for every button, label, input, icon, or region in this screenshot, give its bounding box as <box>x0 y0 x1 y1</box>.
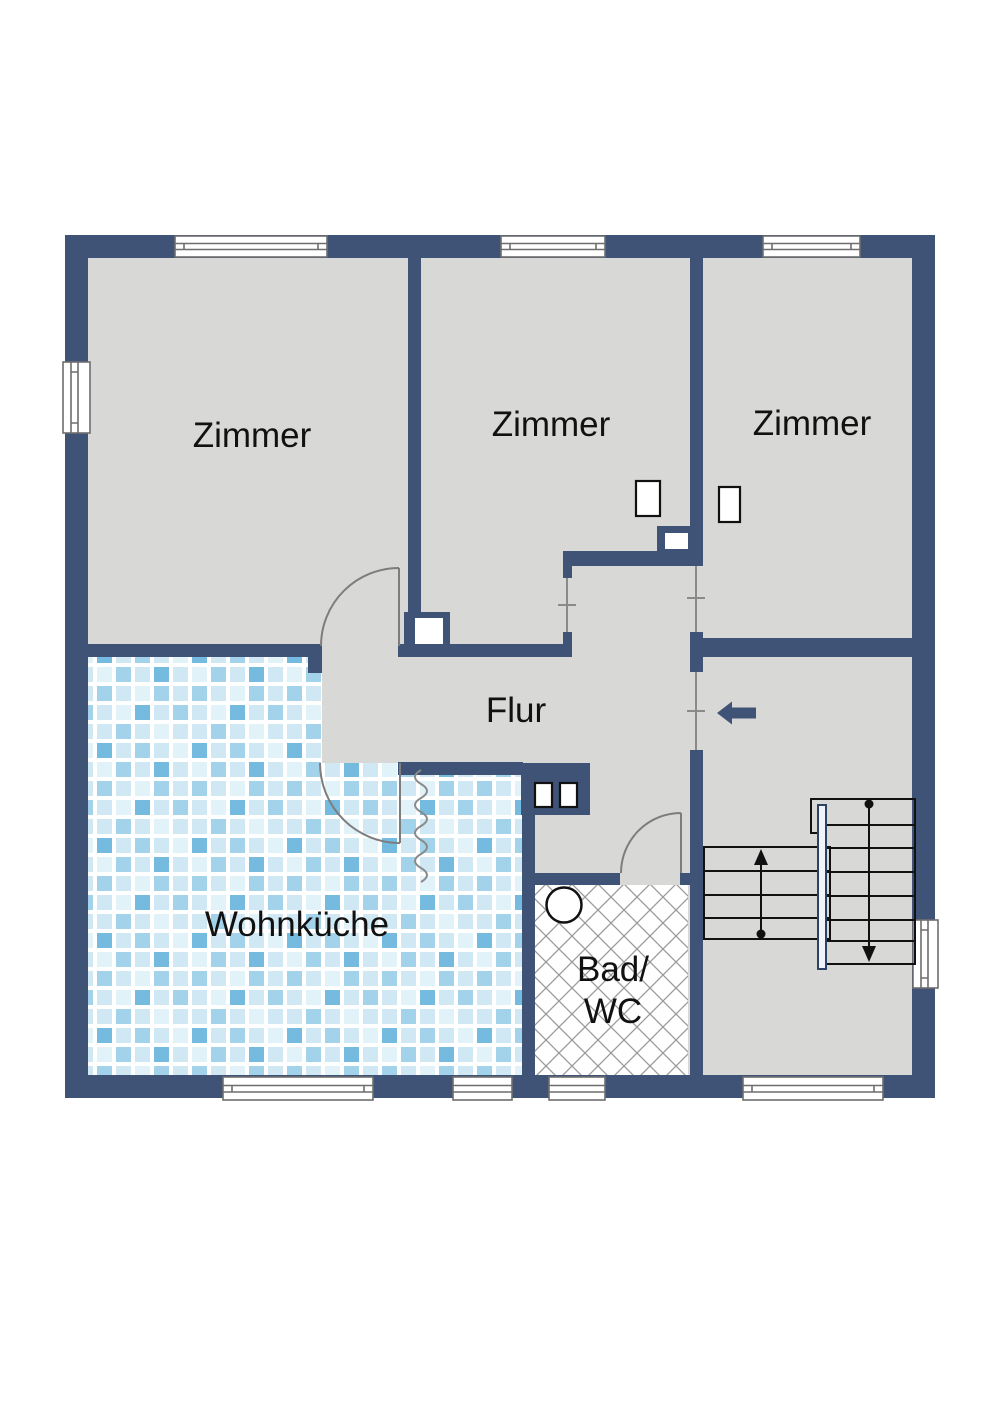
window-bottom-2 <box>453 1077 512 1100</box>
label-wohnkueche: Wohnküche <box>205 905 389 944</box>
wall-zimmer2-flur-lower <box>398 644 565 657</box>
wall-zimmer2-zimmer3 <box>690 258 703 526</box>
label-zimmer-top-left: Zimmer <box>193 416 312 455</box>
window-top-3 <box>763 236 860 257</box>
wall-zimmer1-zimmer2 <box>408 258 421 614</box>
radiator-flur-1 <box>535 783 552 807</box>
washbasin-icon <box>547 888 582 923</box>
wall-stub-passage <box>308 644 322 673</box>
wall-bad-top <box>522 873 620 885</box>
window-right <box>913 920 938 988</box>
chimney-shaft-left <box>415 618 443 644</box>
doorjamb-zimmer2-top <box>563 551 572 578</box>
stair-railing <box>818 805 826 969</box>
stair-up-start-dot <box>757 930 766 939</box>
radiator-zimmer2 <box>636 481 660 516</box>
label-bad-wc-line1: Bad/ <box>577 950 649 989</box>
window-top-2 <box>501 236 605 257</box>
window-bottom-4 <box>743 1077 883 1100</box>
wall-flur-stairroom <box>690 750 703 1075</box>
window-top-1 <box>175 236 327 257</box>
label-bad-wc-line2: WC <box>584 992 642 1031</box>
wall-zimmer2-flur-upper <box>563 551 703 566</box>
wall-zimmer3-stairroom <box>703 638 912 657</box>
radiator-flur-2 <box>560 783 577 807</box>
label-zimmer-top-middle: Zimmer <box>492 405 611 444</box>
wall-stub-entry-top <box>690 632 703 672</box>
window-bottom-3 <box>549 1077 605 1100</box>
floorplan-page: Zimmer Zimmer Zimmer Flur Wohnküche Bad/… <box>0 0 1000 1415</box>
radiator-zimmer3 <box>719 487 740 522</box>
floorplan-drawing: Zimmer Zimmer Zimmer Flur Wohnküche Bad/… <box>0 0 1000 1415</box>
window-bottom-1 <box>223 1077 373 1100</box>
label-flur: Flur <box>486 691 547 730</box>
wall-wohnkueche-bad <box>522 775 535 1075</box>
wall-bad-top-stub <box>680 873 690 885</box>
doorjamb-zimmer2-bottom <box>563 632 572 657</box>
wall-zimmer1-wohnkueche <box>88 644 310 657</box>
window-left <box>63 362 90 433</box>
label-zimmer-top-right: Zimmer <box>753 404 872 443</box>
stair-down-start-dot <box>865 800 874 809</box>
chimney-shaft-right <box>665 533 688 549</box>
